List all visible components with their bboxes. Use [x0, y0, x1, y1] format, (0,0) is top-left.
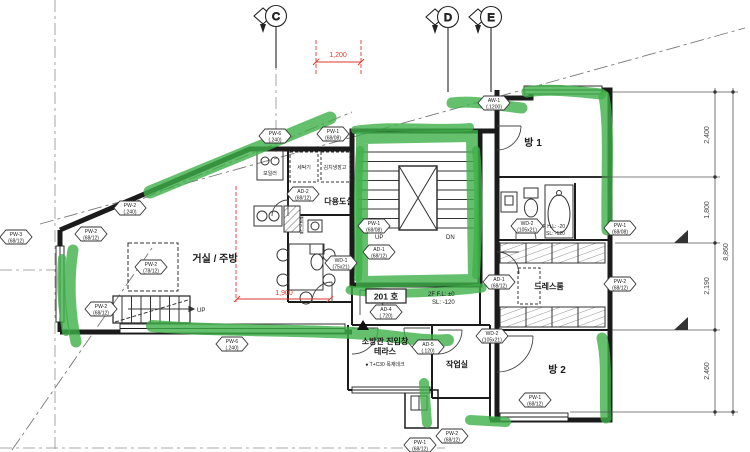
svg-text:(68/08): (68/08) — [366, 228, 382, 234]
label-stair-dn: DN — [446, 235, 455, 241]
floorplan-drawing: 1,200 1,900 2,400 1,800 2,190 2,460 8,86… — [0, 0, 750, 452]
wall-tag: PW-2 (68/12) — [75, 227, 107, 242]
svg-text:(105x21): (105x21) — [517, 228, 537, 234]
wall-tag: WD-2 (105x21) — [476, 329, 508, 344]
svg-text:(68/12): (68/12) — [295, 196, 311, 202]
wall-tag: AD-5 (.120) — [412, 340, 444, 355]
svg-text:(.120): (.120) — [421, 349, 434, 355]
wall-tag: PW-2 (.240) — [114, 201, 146, 216]
wall-tag: PW-1 (68/08) — [604, 221, 636, 236]
label-dressroom: 드레스룸 — [534, 281, 564, 291]
svg-text:(68/12): (68/12) — [8, 239, 24, 245]
wall-tag: PW-1 (68/12) — [404, 438, 436, 452]
grid-label-d: D — [444, 12, 452, 24]
kitchen-fixtures — [128, 151, 350, 304]
dim-right-total: 8,860 — [723, 243, 730, 261]
svg-text:(68/12): (68/12) — [83, 236, 99, 242]
marker-diagonal-wall — [150, 118, 330, 192]
wall-tag: PW-1 (68/12) — [519, 393, 551, 408]
svg-text:PW-1: PW-1 — [614, 223, 627, 229]
chair — [323, 274, 335, 286]
dim-living: 1,900 — [275, 290, 293, 297]
svg-text:PW-2: PW-2 — [124, 203, 137, 209]
label-deck-note: ● T+C30 목재데크 — [365, 361, 405, 368]
label-terrace: 테라스 — [374, 346, 397, 356]
svg-text:AD-5: AD-5 — [422, 342, 434, 348]
wall-tag: PW-1 (68/08) — [358, 219, 390, 234]
label-level-main-1: 2F F.L: ±0 — [428, 292, 455, 298]
grid-bubble-C: C — [254, 6, 287, 69]
svg-text:WD-2: WD-2 — [486, 331, 499, 337]
label-workroom: 작업실 — [446, 359, 468, 369]
svg-text:WD-1: WD-1 — [335, 258, 348, 264]
svg-text:PW-2: PW-2 — [95, 304, 108, 310]
dim-right-2: 1,800 — [704, 201, 711, 219]
svg-text:(.1200): (.1200) — [486, 105, 502, 111]
svg-text:PW-1: PW-1 — [368, 221, 381, 227]
wall-tag: AD-1 (68/12) — [363, 245, 395, 260]
svg-text:PW-1: PW-1 — [414, 440, 427, 446]
svg-text:(.240): (.240) — [225, 346, 238, 352]
stairwell — [358, 152, 474, 230]
svg-text:(.240): (.240) — [123, 210, 136, 216]
small-bath-fixtures — [308, 220, 324, 270]
svg-text:(68/08): (68/08) — [325, 136, 341, 142]
entry-stair — [113, 296, 194, 323]
svg-text:AD-1: AD-1 — [493, 277, 505, 283]
label-outdoor-unit: 실외기실 — [298, 213, 304, 235]
door-room1 — [497, 126, 521, 150]
unit-number-box: 201 호 — [366, 289, 406, 303]
svg-text:PW-6: PW-6 — [226, 339, 239, 345]
label-kimchi-fridge: 김치냉장고 — [323, 164, 346, 171]
label-unit-number: 201 호 — [374, 292, 399, 302]
marker-east-wall-upper — [604, 96, 607, 230]
grid-label-e: E — [487, 12, 494, 24]
wall-tag: AD-4 (.720) — [370, 305, 402, 320]
svg-text:(68/12): (68/12) — [491, 284, 507, 290]
label-level-bath-1: 2F H.L: -20 — [540, 224, 565, 230]
wall-tag: WD-2 (105x21) — [511, 219, 543, 234]
grid-label-c: C — [272, 11, 280, 23]
svg-text:(75x21): (75x21) — [333, 265, 350, 271]
label-room2: 방 2 — [548, 363, 566, 376]
wall-tag: PW-3 (68/12) — [0, 230, 32, 245]
label-fireman-window: 소방관 진입창 — [362, 336, 409, 346]
svg-text:PW-3: PW-3 — [10, 232, 23, 238]
svg-text:(68/12): (68/12) — [412, 447, 428, 452]
svg-text:PW-2: PW-2 — [446, 431, 459, 437]
dim-top: 1,200 — [329, 52, 347, 59]
svg-text:AD-4: AD-4 — [380, 307, 392, 313]
label-room1: 방 1 — [524, 136, 542, 149]
label-entry-up: UP — [197, 308, 205, 314]
svg-text:PW-1: PW-1 — [529, 395, 542, 401]
svg-text:(78/12): (78/12) — [143, 269, 159, 275]
cooktop — [254, 206, 282, 226]
dim-right-3: 2,190 — [704, 277, 711, 295]
svg-text:(105x21): (105x21) — [482, 338, 502, 344]
svg-text:(68/12): (68/12) — [93, 311, 109, 317]
svg-text:(68/12): (68/12) — [444, 438, 460, 444]
svg-text:(68/08): (68/08) — [612, 230, 628, 236]
wall-tag: PW-1 (68/08) — [317, 127, 349, 142]
svg-text:PW-6: PW-6 — [269, 131, 282, 137]
svg-text:PW-2: PW-2 — [85, 229, 98, 235]
label-living-kitchen: 거실 / 주방 — [192, 252, 238, 265]
dim-right-4: 2,460 — [704, 362, 711, 380]
wall-tag: PW-2 (68/12) — [85, 302, 117, 317]
wall-tag: PW-2 (78/12) — [135, 260, 167, 275]
floorplan-canvas: 1,200 1,900 2,400 1,800 2,190 2,460 8,86… — [0, 0, 750, 452]
dim-right-1: 2,400 — [704, 126, 711, 144]
svg-text:(.240): (.240) — [268, 138, 281, 144]
wall-tag: AD-2 (68/12) — [287, 187, 319, 202]
label-boiler: 보일러 — [263, 170, 277, 177]
wall-tag: PW-6 (.240) — [259, 129, 291, 144]
label-stair-up: UP — [375, 235, 383, 241]
svg-text:PW-1: PW-1 — [327, 129, 340, 135]
grid-bubble-D: D — [426, 7, 459, 93]
label-level-bath-2: SL: -120 — [546, 231, 565, 237]
svg-text:PW-2: PW-2 — [614, 279, 627, 285]
label-utility: 다용도실 — [324, 196, 353, 206]
svg-text:(68/12): (68/12) — [612, 286, 628, 292]
wall-tag: WD-1 (75x21) — [325, 256, 357, 271]
wall-tag: AD-1 (68/12) — [483, 275, 515, 290]
svg-text:WD-2: WD-2 — [521, 221, 534, 227]
wall-tag: AW-1 (.1200) — [478, 96, 510, 111]
wall-tag: PW-6 (.240) — [216, 337, 248, 352]
label-washer: 세탁기 — [297, 164, 311, 171]
dining-table — [289, 244, 323, 290]
marker-east-wall-lower — [602, 338, 606, 418]
wall-tag: PW-2 (68/12) — [436, 429, 468, 444]
svg-text:(68/12): (68/12) — [527, 402, 543, 408]
svg-text:AD-1: AD-1 — [373, 247, 385, 253]
svg-text:AD-2: AD-2 — [297, 189, 309, 195]
window-terrace-south — [352, 387, 430, 393]
label-level-main-2: SL: -120 — [432, 300, 455, 306]
svg-text:(.720): (.720) — [379, 314, 392, 320]
grid-bubble-E: E — [469, 7, 502, 93]
wall-tag: PW-2 (68/12) — [604, 277, 636, 292]
svg-text:PW-2: PW-2 — [145, 262, 158, 268]
svg-text:(68/12): (68/12) — [371, 254, 387, 260]
svg-text:AW-1: AW-1 — [488, 98, 500, 104]
